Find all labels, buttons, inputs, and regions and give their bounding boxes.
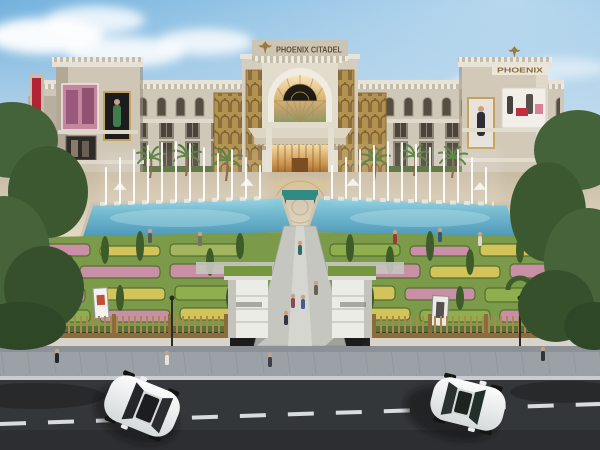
sidewalk (0, 346, 600, 381)
main-sign-text: PHOENIX CITADEL (276, 46, 342, 55)
gate-pillar-right (328, 266, 376, 338)
tower-sign-text: PHOENIX (497, 68, 543, 75)
road (0, 380, 600, 450)
rooftop-sign: PHOENIX CITADEL (252, 40, 348, 61)
fountain-left (80, 142, 294, 241)
scene-phoenix-citadel: PHOENIX (0, 0, 600, 450)
gate-pillar-left (224, 266, 272, 338)
fountain-right (306, 142, 520, 241)
render-canvas: PHOENIX (0, 0, 600, 450)
